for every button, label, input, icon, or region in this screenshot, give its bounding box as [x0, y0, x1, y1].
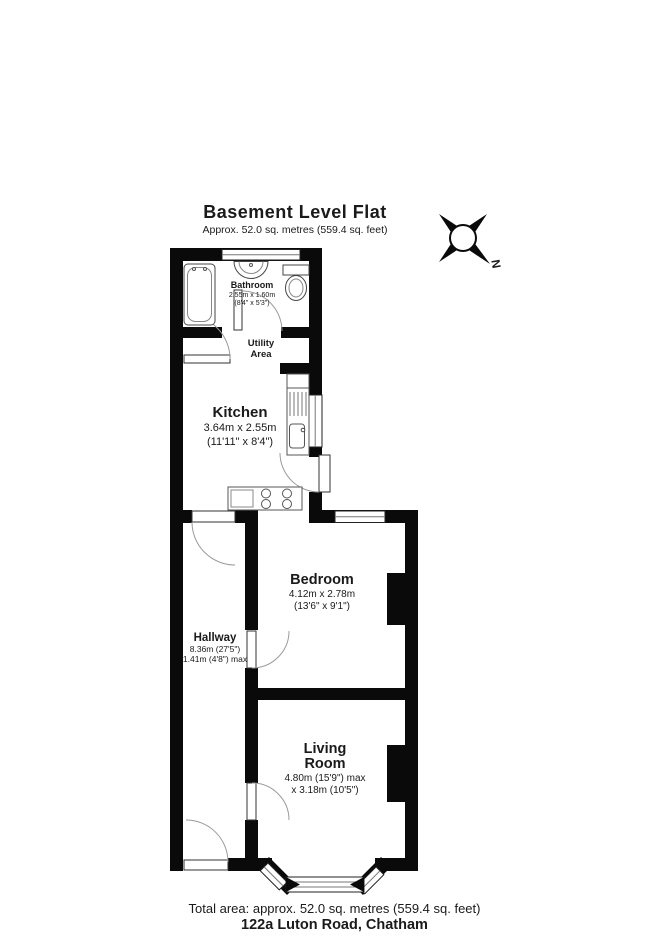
address-text: 122a Luton Road, Chatham [0, 917, 669, 933]
label-hallway: Hallway 8.36m (27'5") 1.41m (4'8") max [183, 632, 248, 664]
kitchen-window [309, 395, 323, 447]
utility-name-line2: Area [250, 349, 272, 360]
toilet [283, 265, 309, 301]
floorplan-page: { "header": { "title": "Basement Level F… [0, 0, 669, 946]
label-living-room: Living Room 4.80m (15'9") max x 3.18m (1… [284, 741, 365, 796]
label-kitchen: Kitchen 3.64m x 2.55m (11'11" x 8'4") [204, 404, 277, 448]
living-room-chimney-breast [387, 745, 405, 802]
bedroom-name: Bedroom [290, 572, 354, 588]
bay-front-window [286, 877, 364, 892]
bedroom-chimney-breast [387, 573, 405, 625]
front-door [184, 820, 228, 870]
stove-hob [228, 487, 302, 510]
bedroom-window [335, 511, 385, 523]
floor-plan-drawing: Bathroom 2.55m x 1.60m (8'4" x 5'3") Uti… [0, 0, 669, 946]
compass-rose: N [439, 214, 504, 269]
bathroom-dims-imperial: (8'4" x 5'3") [234, 300, 269, 307]
bedroom-dims-metric: 4.12m x 2.78m [289, 589, 355, 600]
living-room-name-line1: Living [304, 741, 347, 757]
hallway-length: 8.36m (27'5") [190, 644, 241, 654]
living-room-name-line2: Room [304, 756, 345, 772]
label-utility: Utility Area [248, 338, 275, 360]
compass-north-label: N [488, 259, 503, 270]
bathroom-dims-metric: 2.55m x 1.60m [229, 292, 275, 299]
basin-sink [234, 262, 268, 279]
kitchen-name: Kitchen [212, 404, 267, 421]
bedroom-door [247, 631, 289, 668]
bathroom-window [222, 250, 300, 261]
bathtub [184, 264, 215, 325]
sink-bowl [290, 424, 305, 448]
living-room-dims-imperial: x 3.18m (10'5") [291, 785, 358, 796]
kitchen-counter-sink [287, 374, 309, 455]
kitchen-dims-imperial: (11'11" x 8'4") [207, 436, 273, 448]
bedroom-dims-imperial: (13'6" x 9'1") [294, 601, 350, 612]
compass-circle [450, 225, 476, 251]
utility-name-line1: Utility [248, 338, 275, 349]
bay-window [260, 862, 386, 894]
kitchen-hallway-door [192, 511, 235, 565]
living-room-door [247, 783, 289, 820]
bathroom-name: Bathroom [231, 280, 274, 290]
label-bedroom: Bedroom 4.12m x 2.78m (13'6" x 9'1") [289, 572, 355, 612]
living-room-dims-metric: 4.80m (15'9") max [284, 773, 365, 784]
hallway-width: 1.41m (4'8") max [183, 654, 248, 664]
chimney-breasts [387, 573, 405, 802]
total-area-text: Total area: approx. 52.0 sq. metres (559… [0, 901, 669, 916]
kitchen-dims-metric: 3.64m x 2.55m [204, 422, 277, 434]
hallway-name: Hallway [194, 632, 237, 644]
label-bathroom: Bathroom 2.55m x 1.60m (8'4" x 5'3") [229, 280, 275, 307]
kitchen-back-door [280, 453, 330, 492]
